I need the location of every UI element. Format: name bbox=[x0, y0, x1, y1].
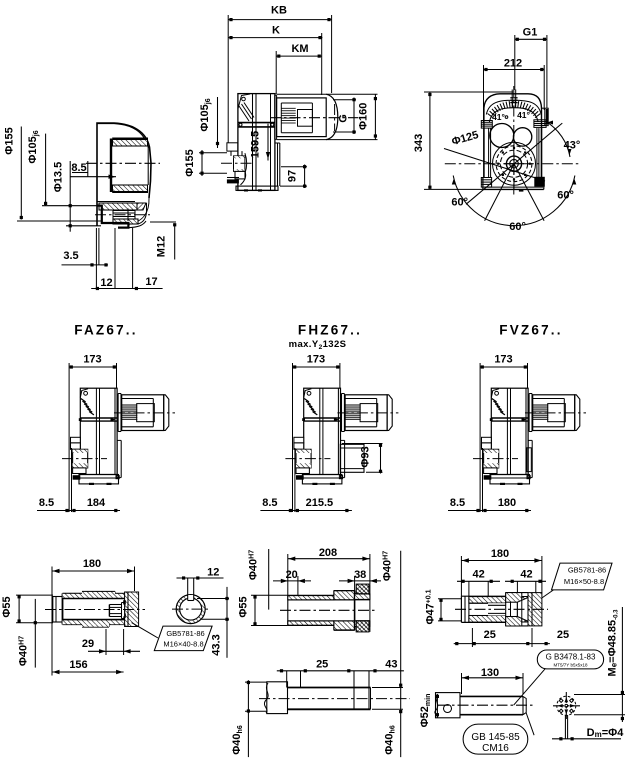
svg-text:Φ55: Φ55 bbox=[1, 596, 13, 617]
svg-text:12: 12 bbox=[207, 566, 219, 578]
svg-text:G: G bbox=[338, 114, 350, 123]
svg-text:Φ55: Φ55 bbox=[238, 596, 250, 617]
svg-text:173: 173 bbox=[83, 354, 101, 366]
svg-text:60°: 60° bbox=[557, 189, 574, 201]
svg-text:GB5781-86: GB5781-86 bbox=[166, 629, 204, 638]
svg-text:208: 208 bbox=[319, 547, 337, 559]
svg-text:max.Y2132S: max.Y2132S bbox=[289, 339, 347, 351]
svg-text:M16×50-8.8: M16×50-8.8 bbox=[564, 577, 604, 586]
svg-text:130: 130 bbox=[481, 667, 499, 679]
svg-text:GB 145-85: GB 145-85 bbox=[471, 732, 520, 743]
svg-text:12: 12 bbox=[100, 277, 112, 289]
svg-text:60°: 60° bbox=[509, 221, 526, 233]
svg-text:42: 42 bbox=[520, 569, 532, 581]
svg-text:CM16: CM16 bbox=[482, 743, 509, 754]
svg-text:159.5: 159.5 bbox=[250, 131, 262, 159]
svg-text:41°: 41° bbox=[492, 112, 505, 122]
svg-text:43: 43 bbox=[385, 659, 397, 671]
svg-text:180: 180 bbox=[83, 558, 101, 570]
svg-text:29: 29 bbox=[82, 638, 94, 650]
svg-text:Φ155: Φ155 bbox=[184, 149, 196, 176]
svg-text:17: 17 bbox=[145, 276, 157, 288]
svg-text:173: 173 bbox=[494, 354, 512, 366]
svg-text:G B3478.1-83: G B3478.1-83 bbox=[546, 653, 596, 662]
svg-text:Φ93: Φ93 bbox=[360, 446, 372, 467]
svg-text:156: 156 bbox=[69, 659, 87, 671]
svg-text:25: 25 bbox=[557, 629, 569, 641]
svg-text:8.5: 8.5 bbox=[39, 497, 54, 509]
svg-text:8.5: 8.5 bbox=[450, 497, 465, 509]
svg-text:Dm=Φ4: Dm=Φ4 bbox=[587, 727, 625, 739]
svg-text:FVZ67..: FVZ67.. bbox=[499, 323, 562, 338]
svg-text:KM: KM bbox=[291, 43, 308, 55]
svg-text:41°: 41° bbox=[517, 110, 530, 120]
svg-text:Φ155: Φ155 bbox=[4, 127, 16, 154]
svg-text:97: 97 bbox=[287, 170, 299, 182]
svg-text:G1: G1 bbox=[523, 27, 538, 39]
svg-text:GB5781-86: GB5781-86 bbox=[568, 566, 606, 575]
svg-text:180: 180 bbox=[491, 548, 509, 560]
svg-text:25: 25 bbox=[316, 659, 328, 671]
svg-text:KB: KB bbox=[271, 5, 287, 17]
svg-text:173: 173 bbox=[307, 354, 325, 366]
svg-text:3.5: 3.5 bbox=[63, 250, 78, 262]
svg-text:60°: 60° bbox=[451, 197, 468, 209]
svg-text:43°: 43° bbox=[564, 140, 581, 152]
svg-text:215.5: 215.5 bbox=[306, 497, 334, 509]
svg-text:FHZ67..: FHZ67.. bbox=[298, 323, 362, 338]
svg-text:343: 343 bbox=[413, 134, 425, 152]
svg-text:38: 38 bbox=[354, 569, 366, 581]
svg-text:43.3: 43.3 bbox=[211, 634, 223, 655]
svg-text:MT5/7Y b5x5x18: MT5/7Y b5x5x18 bbox=[554, 663, 588, 668]
svg-text:M16×40-8.8: M16×40-8.8 bbox=[163, 640, 203, 649]
svg-text:Φ160: Φ160 bbox=[358, 103, 370, 130]
svg-text:180: 180 bbox=[498, 497, 516, 509]
svg-text:FAZ67..: FAZ67.. bbox=[74, 323, 137, 338]
svg-text:212: 212 bbox=[504, 58, 522, 70]
svg-text:8.5: 8.5 bbox=[262, 497, 277, 509]
svg-text:20: 20 bbox=[286, 569, 298, 581]
svg-text:42: 42 bbox=[472, 569, 484, 581]
svg-text:Φ13.5: Φ13.5 bbox=[53, 162, 65, 192]
svg-text:25: 25 bbox=[484, 629, 496, 641]
svg-text:184: 184 bbox=[87, 497, 106, 509]
svg-text:M12: M12 bbox=[156, 236, 168, 257]
svg-text:K: K bbox=[272, 24, 280, 36]
